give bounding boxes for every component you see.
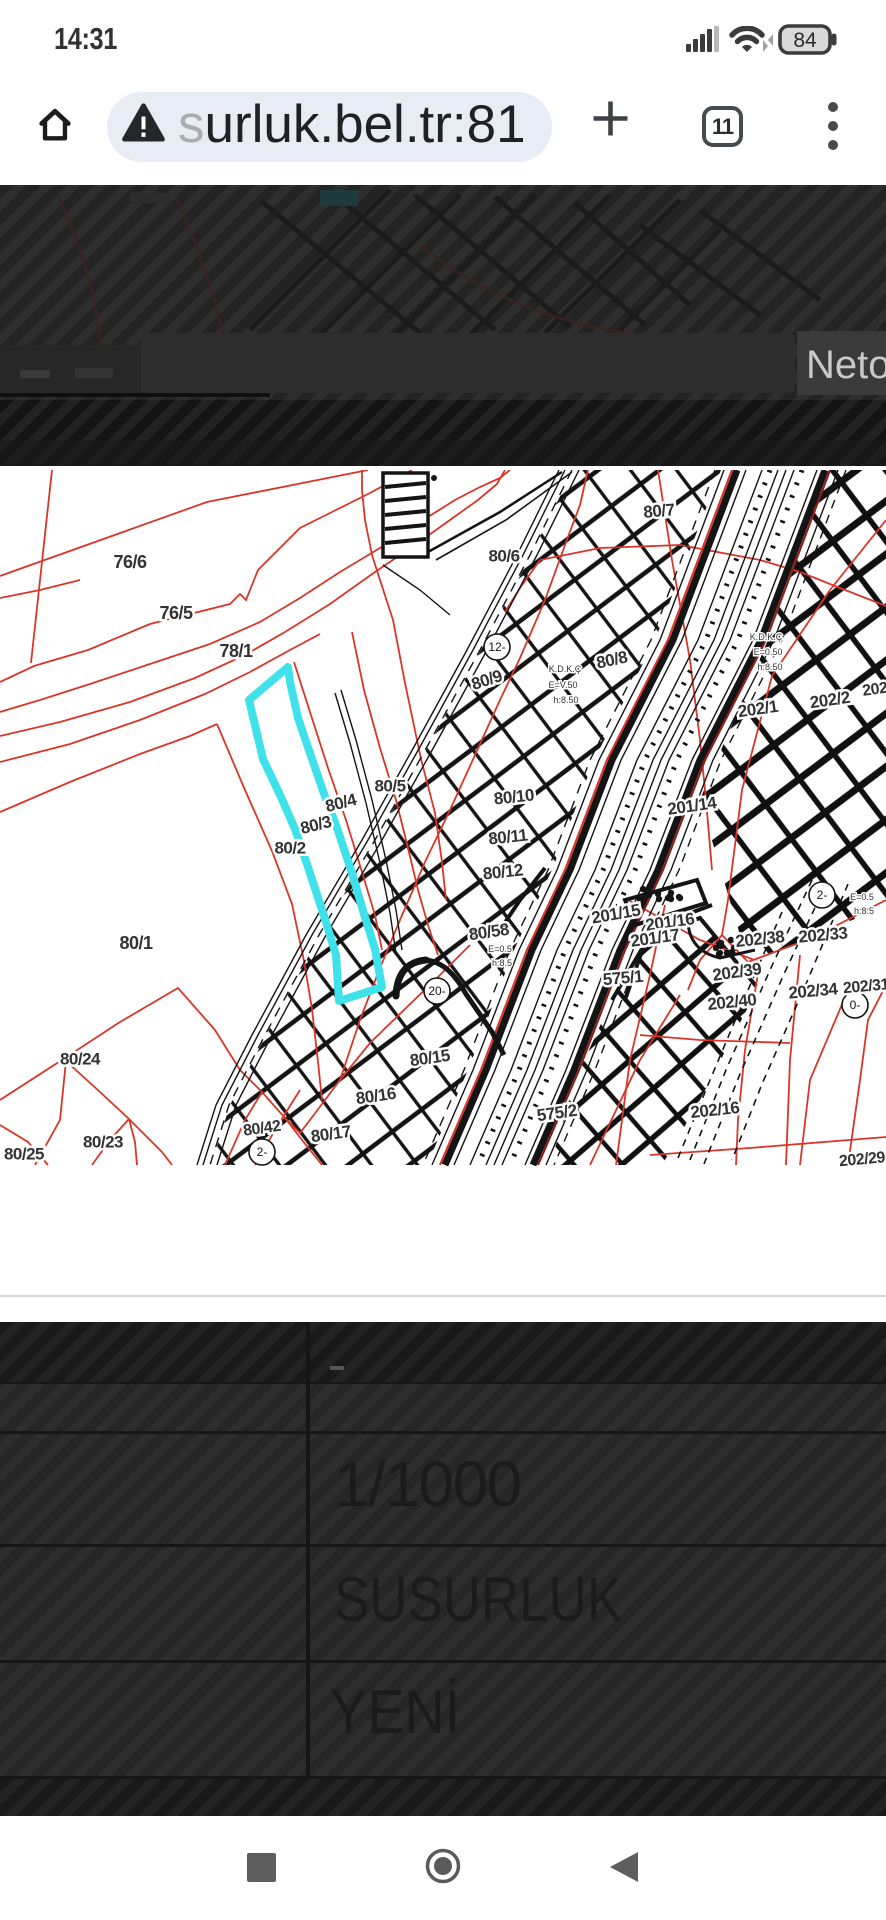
svg-text:E=V.50: E=V.50 [549, 680, 578, 690]
svg-text:E=0.50: E=0.50 [754, 647, 783, 657]
svg-text:76/6: 76/6 [113, 552, 147, 572]
svg-text:80/7: 80/7 [643, 500, 676, 522]
svg-text:h:8.50: h:8.50 [757, 662, 782, 672]
svg-text:h:8.5: h:8.5 [492, 958, 512, 968]
svg-text:2-: 2- [257, 1145, 268, 1159]
svg-text:80/25: 80/25 [4, 1144, 44, 1163]
svg-text:80/23: 80/23 [83, 1132, 123, 1151]
svg-text:80/11: 80/11 [487, 825, 528, 848]
svg-text:80/6: 80/6 [488, 546, 519, 565]
svg-text:Neto: Neto [806, 343, 886, 387]
svg-text:575/1: 575/1 [602, 967, 644, 989]
svg-text:84: 84 [793, 29, 817, 52]
svg-text:20-: 20- [428, 984, 445, 998]
svg-text:202/31: 202/31 [842, 976, 886, 997]
svg-text:E=0.5: E=0.5 [488, 944, 512, 954]
svg-text:80/1: 80/1 [119, 933, 153, 953]
svg-text:80/2: 80/2 [274, 838, 305, 857]
svg-text:76/5: 76/5 [159, 603, 193, 623]
svg-text:K.D.K.Ç: K.D.K.Ç [750, 632, 783, 642]
svg-text:2-: 2- [817, 888, 828, 902]
svg-text:K.D.K.Ç: K.D.K.Ç [549, 664, 582, 674]
svg-text:80/5: 80/5 [374, 776, 405, 795]
svg-text:12-: 12- [488, 640, 505, 654]
svg-text:h:8.5: h:8.5 [854, 906, 874, 916]
svg-text:0-: 0- [850, 998, 861, 1012]
svg-text:78/1: 78/1 [219, 641, 253, 661]
svg-text:E=0.5: E=0.5 [850, 892, 874, 902]
svg-text:h:8.50: h:8.50 [553, 695, 578, 705]
svg-text:80/24: 80/24 [60, 1049, 101, 1068]
svg-text:202: 202 [861, 679, 886, 699]
